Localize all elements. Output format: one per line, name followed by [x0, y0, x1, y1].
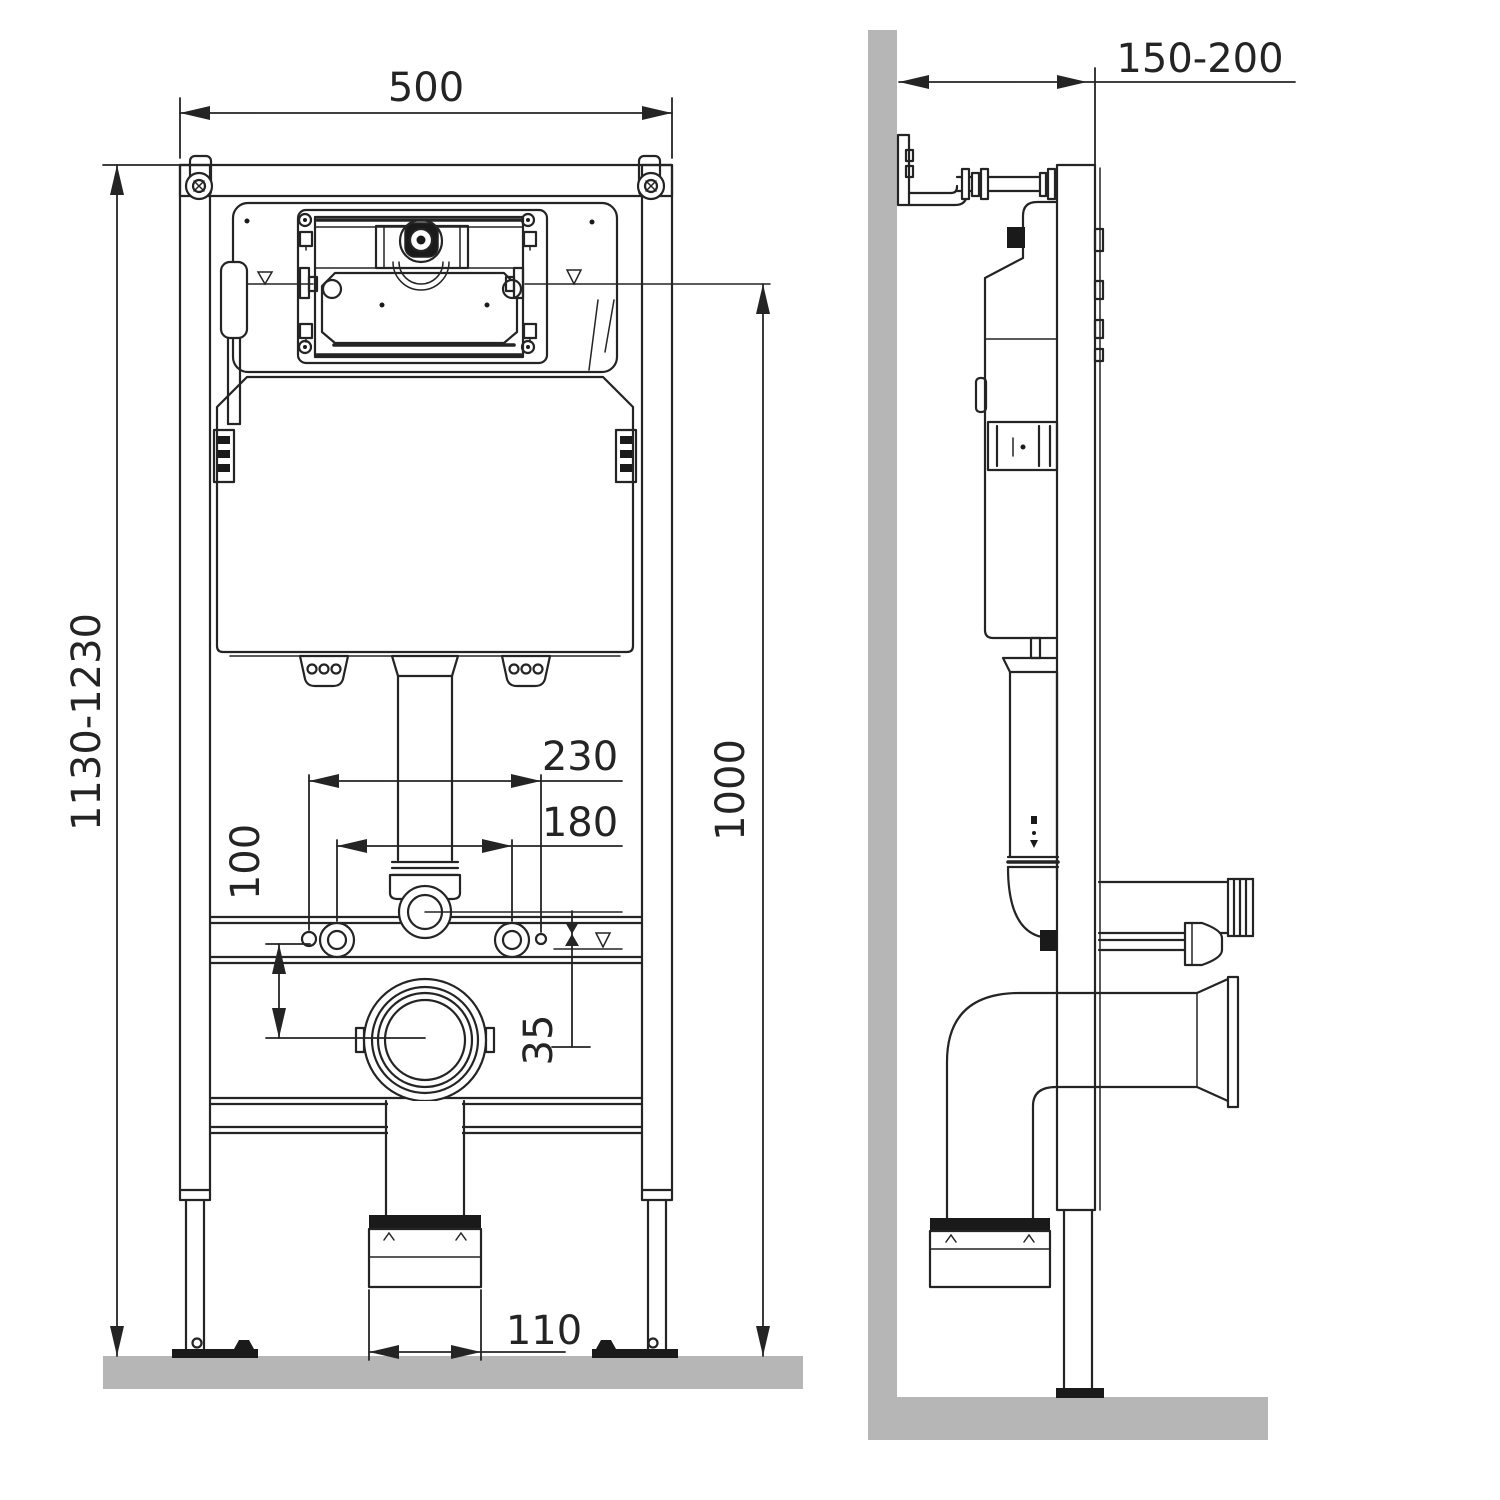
technical-drawing-canvas: 500 1130-1230 1000 230	[0, 0, 1500, 1500]
pipe-marking	[1030, 840, 1038, 848]
foot-plate-side	[1056, 1388, 1104, 1398]
dim-frame-width: 500	[180, 65, 672, 158]
drain-elbow-side	[930, 993, 1099, 1287]
foot-adjuster-right	[649, 1339, 658, 1348]
flush-unit-box	[988, 422, 1057, 470]
dim-label-35: 35	[516, 1015, 562, 1066]
cistern-front	[214, 203, 636, 686]
drawing-page: 500 1130-1230 1000 230	[0, 0, 1500, 1500]
outer-fixing-hole-right	[536, 934, 546, 944]
tank-tab-left	[300, 656, 348, 686]
dim-installation-height: 1130-1230	[64, 165, 180, 1356]
wall-bracket	[898, 135, 967, 205]
outlet-spigot	[1099, 977, 1238, 1107]
wc-bolt-hole-left	[320, 923, 354, 957]
foot-adjuster-left	[193, 1339, 202, 1348]
foot-clamp-left	[234, 1340, 254, 1349]
side-view: 150-200	[868, 30, 1295, 1440]
dim-label-1130-1230: 1130-1230	[64, 613, 110, 831]
inlet-valve-side	[1007, 227, 1025, 248]
spigot-flange	[1228, 977, 1238, 1107]
wc-bolt-hole-right	[495, 923, 529, 957]
rail-screw-right	[638, 173, 664, 199]
foot-plate-right	[592, 1349, 678, 1358]
dim-label-180: 180	[542, 800, 618, 846]
level-marks	[554, 922, 622, 949]
cistern-side	[976, 202, 1057, 672]
leg-right	[592, 1190, 678, 1358]
front-view: 500 1130-1230 1000 230	[64, 65, 803, 1389]
dim-socket-110: 110	[369, 1290, 582, 1360]
dim-label-1000: 1000	[708, 739, 754, 841]
anchor-rod	[957, 169, 1057, 199]
flush-pipe-front	[390, 656, 622, 938]
drain-socket-cap-side	[930, 1218, 1050, 1231]
foot-clamp-right	[596, 1340, 616, 1349]
drain-outlet-ring	[364, 979, 486, 1101]
bend-connector	[1040, 930, 1057, 951]
frame-top-rail	[180, 165, 672, 196]
floor-front	[103, 1356, 803, 1389]
frame-rail-side	[1056, 165, 1104, 1398]
foot-plate-left	[172, 1349, 258, 1358]
wall-side	[868, 30, 897, 1440]
tank-tab-right	[502, 656, 550, 686]
dim-label-230: 230	[542, 734, 618, 780]
flush-mechanism	[315, 220, 523, 290]
rail-screw-left	[186, 173, 212, 199]
flush-bend-side	[1008, 867, 1048, 938]
dim-inner-fixing: 180	[337, 800, 622, 921]
leg-left	[172, 1190, 258, 1358]
floor-side	[868, 1397, 1268, 1440]
level-triangle-left	[258, 272, 272, 284]
tank-body	[217, 377, 633, 652]
dim-label-150-200: 150-200	[1116, 36, 1283, 82]
frame-column-left	[180, 165, 210, 1200]
seal-cone	[1185, 923, 1222, 965]
water-inlet-connector	[1099, 879, 1253, 965]
dim-label-500: 500	[388, 65, 464, 111]
dim-wall-offset: 150-200	[899, 36, 1295, 165]
strut-line	[605, 300, 614, 352]
tab-side	[1031, 638, 1040, 658]
strut-line	[589, 300, 598, 370]
dim-label-100: 100	[223, 824, 269, 900]
flush-pipe-side	[1008, 672, 1058, 951]
dim-label-110: 110	[506, 1308, 582, 1354]
pipe-marking	[1031, 816, 1037, 824]
drain-socket-cap	[369, 1215, 481, 1229]
frame-column-right	[642, 165, 672, 1200]
